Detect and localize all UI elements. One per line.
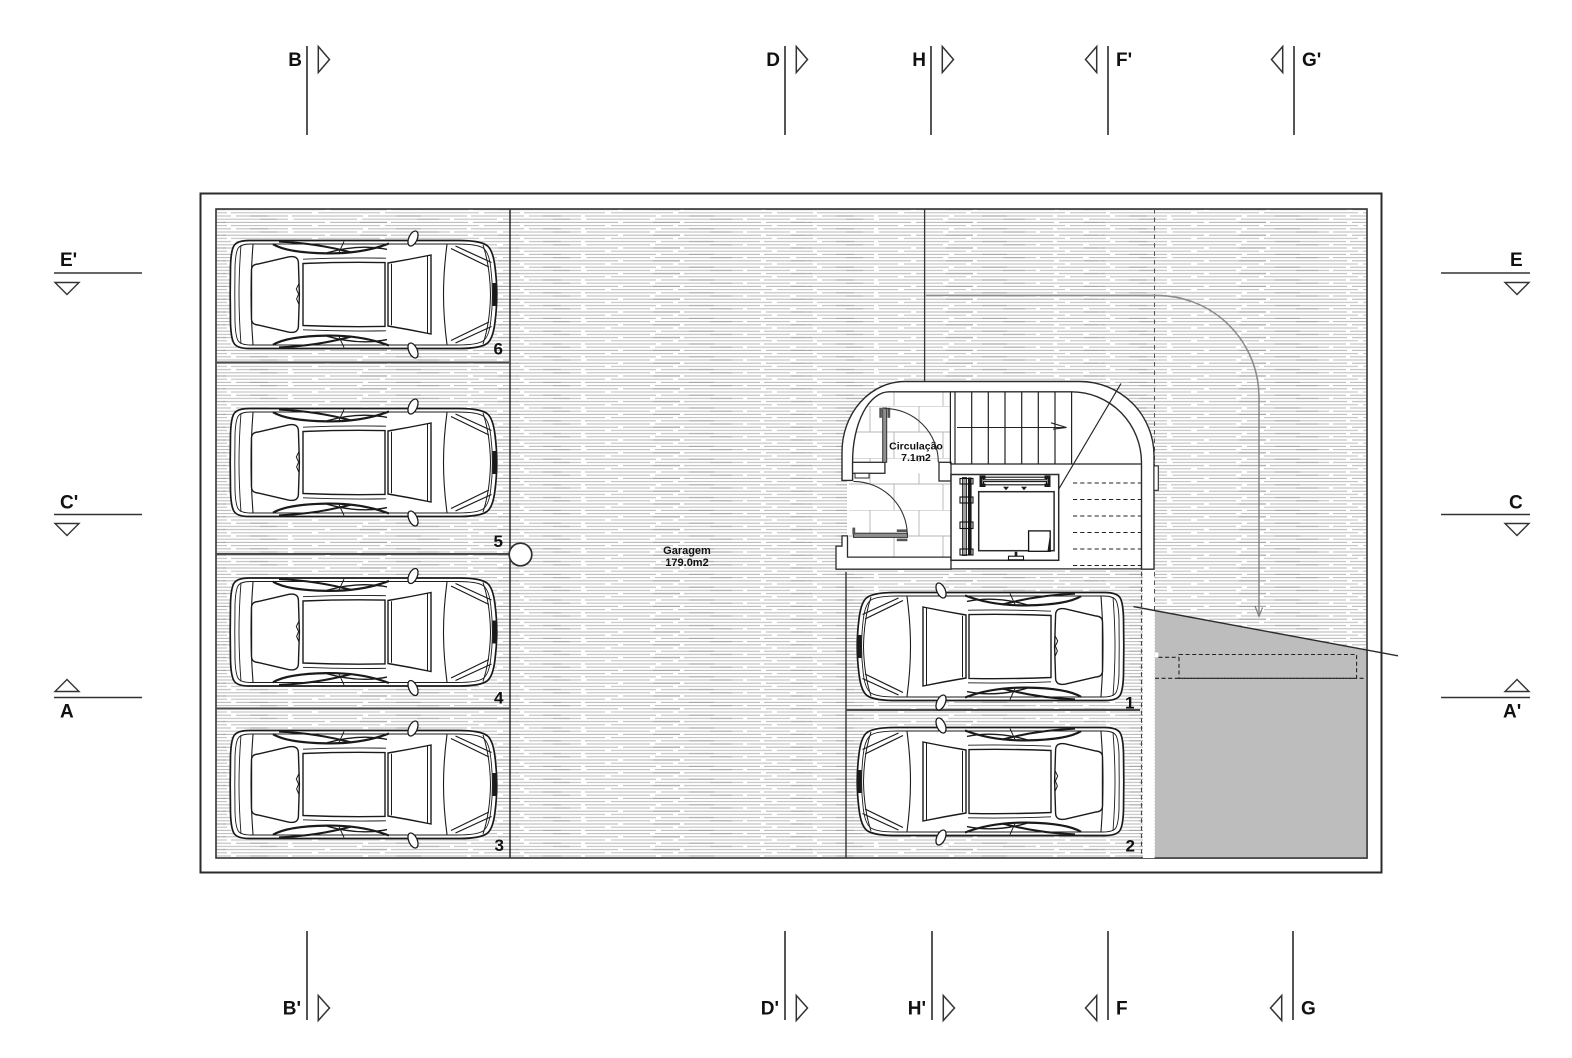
svg-text:F': F' (1116, 50, 1132, 71)
svg-text:4: 4 (494, 689, 504, 708)
svg-text:G': G' (1302, 50, 1321, 71)
svg-text:D': D' (761, 999, 779, 1020)
svg-text:B': B' (283, 999, 301, 1020)
svg-text:1: 1 (1125, 694, 1134, 713)
svg-text:F: F (1116, 999, 1128, 1020)
svg-text:E': E' (60, 250, 77, 271)
svg-text:H': H' (908, 999, 926, 1020)
svg-text:D: D (766, 50, 780, 71)
svg-text:A: A (60, 702, 74, 723)
svg-text:C: C (1509, 493, 1523, 514)
svg-text:3: 3 (495, 836, 504, 855)
svg-text:A': A' (1503, 702, 1521, 723)
svg-text:Circulação: Circulação (889, 441, 943, 453)
svg-text:C': C' (60, 493, 78, 514)
svg-text:6: 6 (494, 340, 503, 359)
svg-text:5: 5 (494, 532, 503, 551)
svg-text:2: 2 (1126, 837, 1135, 856)
svg-text:G: G (1301, 999, 1316, 1020)
svg-text:B: B (288, 50, 302, 71)
svg-text:179.0m2: 179.0m2 (665, 557, 708, 569)
svg-text:E: E (1510, 250, 1523, 271)
svg-text:Garagem: Garagem (663, 545, 711, 557)
svg-text:7.1m2: 7.1m2 (901, 452, 931, 464)
svg-text:H: H (912, 50, 926, 71)
